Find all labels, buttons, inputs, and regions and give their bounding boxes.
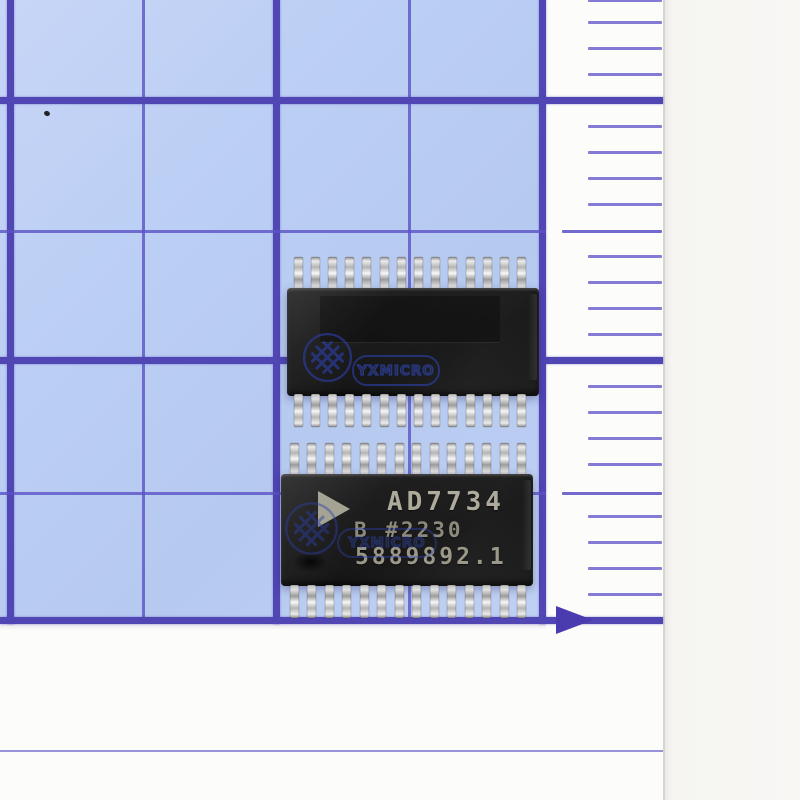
backing-paper-margin bbox=[663, 0, 800, 800]
chip-pin bbox=[447, 443, 456, 476]
ruler-minor-tick bbox=[588, 47, 662, 50]
chip-pin bbox=[325, 443, 334, 476]
knot-circle-icon bbox=[301, 331, 354, 384]
ruler-minor-tick bbox=[588, 463, 662, 466]
chip-pin bbox=[500, 257, 509, 291]
ic-chip-bottom: AD7734 B #2230 5889892.1 YXMICRO bbox=[281, 443, 533, 618]
ruler-minor-tick bbox=[588, 21, 662, 24]
chip-body-front: AD7734 B #2230 5889892.1 YXMICRO bbox=[281, 474, 533, 586]
chip-pin bbox=[412, 443, 421, 476]
pin-row-bottom bbox=[287, 394, 539, 427]
ruler-minor-tick bbox=[588, 593, 662, 596]
chip-pin bbox=[307, 443, 316, 476]
chip-pin bbox=[465, 585, 474, 618]
ruler-minor-tick bbox=[588, 437, 662, 440]
chip-pin bbox=[430, 585, 439, 618]
chip-pin bbox=[466, 394, 475, 427]
ruler-minor-tick bbox=[588, 541, 662, 544]
ic-chip-top: YXMICRO bbox=[287, 257, 539, 427]
ruler-minor-tick bbox=[588, 385, 662, 388]
chip-pin bbox=[482, 585, 491, 618]
chip-pin bbox=[325, 585, 334, 618]
major-vertical-gridline bbox=[7, 0, 14, 624]
chip-pin bbox=[342, 443, 351, 476]
chip-pin bbox=[397, 257, 406, 291]
watermark-text: YXMICRO bbox=[357, 363, 434, 379]
chip-pin bbox=[500, 443, 509, 476]
knot-circle-icon bbox=[283, 500, 340, 557]
chip-pin bbox=[395, 585, 404, 618]
ruler-minor-tick bbox=[588, 307, 662, 310]
chip-pin bbox=[517, 585, 526, 618]
watermark-badge: YXMICRO bbox=[352, 355, 440, 386]
chip-pin bbox=[290, 443, 299, 476]
chip-pin bbox=[483, 257, 492, 291]
chip-body-back: YXMICRO bbox=[287, 288, 539, 396]
chip-pin bbox=[500, 585, 509, 618]
chip-pin bbox=[362, 257, 371, 291]
chip-pin bbox=[377, 443, 386, 476]
watermark-text: YXMICRO bbox=[348, 535, 425, 551]
ruler-minor-tick bbox=[588, 255, 662, 258]
chip-pin bbox=[290, 585, 299, 618]
ruler-minor-tick bbox=[588, 281, 662, 284]
chip-pin bbox=[466, 257, 475, 291]
ruler-minor-tick bbox=[588, 73, 662, 76]
major-horizontal-gridline bbox=[0, 97, 663, 104]
chip-pin bbox=[311, 394, 320, 427]
ruler-minor-tick bbox=[588, 151, 662, 154]
chip-pin bbox=[360, 585, 369, 618]
chip-pin bbox=[360, 443, 369, 476]
chip-pin bbox=[448, 394, 457, 427]
ruler-minor-tick bbox=[588, 203, 662, 206]
chip-marking-part-number: AD7734 bbox=[387, 487, 505, 517]
chip-pin bbox=[345, 394, 354, 427]
paper-edge-shadow bbox=[0, 624, 546, 630]
chip-pin bbox=[307, 585, 316, 618]
chip-pin bbox=[345, 257, 354, 291]
ruler-minor-tick bbox=[588, 177, 662, 180]
pin-row-bottom bbox=[281, 585, 533, 618]
chip-pin bbox=[483, 394, 492, 427]
chip-pin bbox=[517, 394, 526, 427]
chip-pin bbox=[311, 257, 320, 291]
package-edge-sheen bbox=[522, 480, 531, 570]
chip-pin bbox=[412, 585, 421, 618]
minor-vertical-gridline bbox=[142, 0, 145, 620]
ruler-arrow-icon bbox=[556, 606, 593, 634]
chip-pin bbox=[517, 257, 526, 291]
chip-pin bbox=[380, 394, 389, 427]
chip-pin bbox=[342, 585, 351, 618]
chip-pin bbox=[431, 394, 440, 427]
chip-pin bbox=[294, 257, 303, 291]
chip-pin bbox=[328, 257, 337, 291]
chip-pin bbox=[430, 443, 439, 476]
minor-horizontal-gridline-on-margin bbox=[0, 750, 663, 752]
ruler-medium-tick bbox=[562, 492, 662, 495]
ruler-minor-tick bbox=[588, 567, 662, 570]
chip-pin bbox=[431, 257, 440, 291]
chip-pin bbox=[447, 585, 456, 618]
chip-pin bbox=[397, 394, 406, 427]
ruler-minor-tick bbox=[588, 333, 662, 336]
watermark-badge: YXMICRO bbox=[337, 528, 437, 558]
ruler-minor-tick bbox=[588, 0, 662, 2]
ruler-minor-tick bbox=[588, 125, 662, 128]
chip-pin bbox=[328, 394, 337, 427]
chip-pin bbox=[482, 443, 491, 476]
chip-pin bbox=[362, 394, 371, 427]
major-vertical-gridline bbox=[273, 0, 280, 624]
chip-pin bbox=[500, 394, 509, 427]
major-vertical-gridline bbox=[539, 0, 546, 624]
pin-row-top bbox=[287, 257, 539, 291]
photo-of-ic-chips: YXMICRO AD7734 B #2230 5889892.1 bbox=[0, 0, 800, 800]
chip-pin bbox=[465, 443, 474, 476]
minor-horizontal-gridline bbox=[0, 230, 546, 233]
chip-pin bbox=[377, 585, 386, 618]
chip-pin bbox=[395, 443, 404, 476]
chip-pin bbox=[380, 257, 389, 291]
chip-pin bbox=[414, 394, 423, 427]
pin-row-top bbox=[281, 443, 533, 476]
chip-pin bbox=[294, 394, 303, 427]
ruler-medium-tick bbox=[562, 230, 662, 233]
chip-pin bbox=[414, 257, 423, 291]
ruler-minor-tick bbox=[588, 515, 662, 518]
package-edge-sheen bbox=[528, 294, 537, 380]
ruler-minor-tick bbox=[588, 411, 662, 414]
chip-pin bbox=[448, 257, 457, 291]
chip-pin bbox=[517, 443, 526, 476]
